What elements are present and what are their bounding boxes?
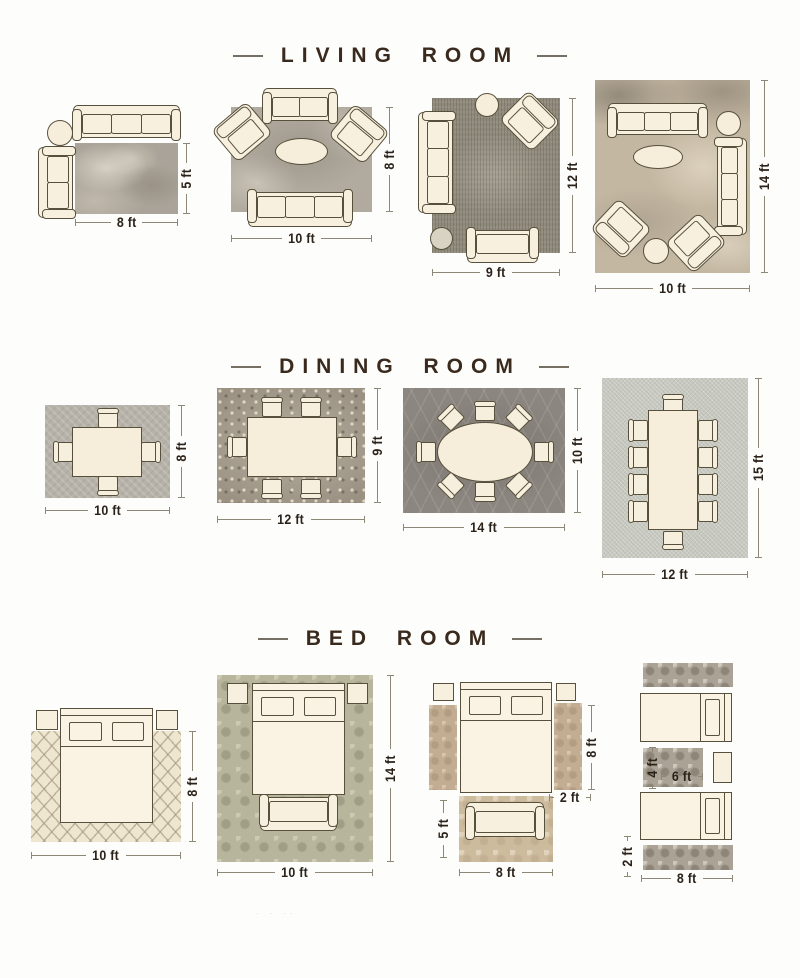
- dimension-line: [389, 175, 390, 212]
- runner-rug: [429, 705, 457, 790]
- rug-width-dimension: 12 ft: [217, 512, 365, 527]
- dining-chair: [141, 442, 158, 462]
- dining-chair: [56, 442, 73, 462]
- pillow-zone: [700, 694, 724, 741]
- chair-back: [227, 436, 233, 458]
- bedroom-layout-runners: 8 ft 2 ft 5 ft 8 ft: [420, 668, 610, 888]
- dimension-line: [577, 388, 578, 431]
- chair-back: [712, 473, 718, 496]
- dining-table: [247, 417, 337, 477]
- rug-width-dimension: 10 ft: [31, 848, 181, 863]
- cushion: [670, 112, 698, 131]
- cushion: [427, 148, 449, 176]
- sofa-cushions: [721, 147, 738, 226]
- three-seat-sofa: [717, 138, 747, 235]
- dimension-line: [390, 675, 391, 749]
- dimension-label: 10 ft: [93, 848, 120, 863]
- loveseat-sofa: [263, 88, 337, 121]
- dimension-line: [652, 784, 653, 789]
- rug-height-dimension: 10 ft: [570, 388, 585, 513]
- cushion: [427, 121, 449, 149]
- cushion: [82, 114, 112, 134]
- dimension-line: [586, 797, 591, 798]
- sofa-cushions: [427, 121, 449, 204]
- dining-layout-12x9: 9 ft 12 ft: [205, 378, 390, 533]
- sofa-arm: [535, 806, 545, 840]
- dimension-label: 8 ft: [117, 215, 137, 230]
- dining-chair: [301, 479, 321, 496]
- runner-rug: [643, 663, 733, 687]
- headboard: [724, 694, 731, 741]
- dining-chair: [698, 474, 715, 495]
- dimension-line: [549, 797, 554, 798]
- rug-width-dimension: 9 ft: [432, 265, 560, 280]
- dimension-line: [591, 763, 592, 790]
- twin-bed: [640, 693, 732, 742]
- dimension-line: [661, 776, 666, 777]
- chair-back: [155, 441, 161, 463]
- living-layout-8x5: 5 ft 8 ft: [30, 85, 210, 240]
- chair-back: [628, 446, 634, 469]
- chair-back: [712, 446, 718, 469]
- rug-width-dimension: 10 ft: [595, 281, 750, 296]
- dimension-label: 5 ft: [436, 819, 451, 839]
- sofa-cushions: [269, 801, 328, 822]
- sofa-arm: [42, 209, 76, 219]
- chair-back: [712, 419, 718, 442]
- dimension-label: 2 ft: [620, 847, 635, 867]
- bedroom-layout-10x14: 14 ft 10 ft: [210, 665, 405, 885]
- dimension-line: [192, 802, 193, 842]
- chair-back: [97, 490, 119, 496]
- rug-height-dimension: 15 ft: [751, 378, 766, 558]
- pillow: [705, 699, 720, 736]
- three-seat-sofa: [418, 112, 453, 213]
- nightstand: [347, 683, 368, 704]
- dimension-label: 12 ft: [662, 567, 689, 582]
- rug-height-dimension: 14 ft: [383, 675, 398, 862]
- dimension-label: 14 ft: [383, 755, 398, 782]
- round-pouf: [430, 227, 453, 250]
- dimension-line: [142, 222, 178, 223]
- dimension-line: [652, 747, 653, 752]
- pillow-row: [461, 690, 551, 721]
- sofa-arm: [714, 137, 743, 147]
- dimension-label: 4 ft: [645, 758, 660, 778]
- header-dash-left: [231, 366, 261, 368]
- dimension-label: 12 ft: [278, 512, 305, 527]
- living-layout-10x14: 14 ft 10 ft: [590, 70, 785, 305]
- dining-chair: [475, 482, 495, 499]
- rug-height-dimension: 8 ft: [185, 731, 200, 842]
- dimension-label: 8 ft: [584, 738, 599, 758]
- dimension-line: [311, 519, 365, 520]
- chair-back: [474, 496, 496, 502]
- dimension-label: 9 ft: [370, 436, 385, 456]
- dimension-label: 10 ft: [282, 865, 309, 880]
- cushion: [314, 196, 343, 218]
- rug-height-dimension: 8 ft: [382, 107, 397, 212]
- rug-width-dimension: 10 ft: [217, 865, 373, 880]
- sofa-arm: [328, 92, 338, 124]
- chair-back: [351, 436, 357, 458]
- sofa-cushions: [257, 196, 343, 218]
- oval-dining-table: [437, 422, 533, 482]
- rug-height-dimension: 14 ft: [757, 80, 772, 273]
- dimension-line: [192, 731, 193, 771]
- cushion: [721, 199, 738, 226]
- dimension-label: 5 ft: [179, 169, 194, 189]
- sofa-arm: [466, 227, 476, 259]
- dimension-line: [186, 143, 187, 163]
- dimension-line: [45, 510, 88, 511]
- dimension-line: [572, 195, 573, 253]
- dimension-label: 9 ft: [486, 265, 506, 280]
- dimension-line: [403, 527, 464, 528]
- dimension-label: 10 ft: [94, 503, 121, 518]
- section-header-living-room: LIVING ROOM: [0, 44, 800, 68]
- dining-chair: [631, 420, 648, 441]
- pillow: [511, 696, 543, 715]
- dimension-line: [758, 488, 759, 558]
- dimension-line: [641, 878, 671, 879]
- nightstand: [156, 710, 178, 730]
- area-rug: [75, 143, 178, 214]
- chair-back: [628, 419, 634, 442]
- sofa-arm: [171, 109, 181, 141]
- cushion: [427, 176, 449, 204]
- dimension-label: 10 ft: [659, 281, 686, 296]
- dimension-line: [75, 222, 111, 223]
- rug-height-dimension: 8 ft: [174, 405, 189, 498]
- dimension-line: [443, 800, 444, 813]
- dimension-line: [692, 288, 750, 289]
- cushion: [269, 801, 328, 822]
- dimension-label: 8 ft: [382, 150, 397, 170]
- pillow: [112, 722, 145, 741]
- round-side-table: [716, 111, 741, 136]
- cushion: [272, 97, 301, 117]
- rug-height-dimension: 5 ft: [179, 143, 194, 214]
- dining-chair: [698, 501, 715, 522]
- living-layout-9x12: 12 ft 9 ft: [415, 85, 595, 285]
- sofa-arm: [698, 107, 708, 138]
- dimension-line: [522, 872, 553, 873]
- cushion: [721, 173, 738, 200]
- section-header-bed-room: BED ROOM: [0, 627, 800, 651]
- mattress: [641, 793, 700, 839]
- chair-back: [628, 473, 634, 496]
- accent-rug-height-dimension: 5 ft: [436, 800, 451, 858]
- dining-chair: [663, 531, 683, 547]
- dimension-label: 8 ft: [496, 865, 516, 880]
- dimension-label: 8 ft: [174, 442, 189, 462]
- rug-height-dimension: 9 ft: [370, 388, 385, 503]
- sofa-cushions: [82, 114, 171, 134]
- bed: [60, 708, 153, 823]
- dining-chair: [230, 437, 247, 457]
- dimension-line: [591, 705, 592, 732]
- nightstand: [227, 683, 248, 704]
- headboard: [61, 709, 152, 716]
- cushion: [257, 196, 286, 218]
- dimension-line: [432, 272, 480, 273]
- dining-chair: [631, 474, 648, 495]
- dimension-line: [764, 196, 765, 273]
- pillow: [69, 722, 102, 741]
- dining-chair: [98, 476, 118, 493]
- nightstand: [713, 752, 732, 783]
- dining-chair: [631, 501, 648, 522]
- three-seat-sofa: [248, 192, 352, 227]
- dimension-line: [389, 107, 390, 144]
- dining-chair: [631, 447, 648, 468]
- dimension-line: [512, 272, 560, 273]
- sofa-arm: [262, 92, 272, 124]
- dimension-label: 6 ft: [672, 769, 692, 784]
- dimension-line: [627, 836, 628, 841]
- dimension-line: [703, 878, 733, 879]
- headboard: [461, 683, 551, 690]
- dimension-line: [390, 788, 391, 862]
- pillow: [261, 697, 294, 716]
- cushion: [47, 156, 69, 183]
- sofa-arm: [42, 146, 76, 156]
- dining-table: [72, 427, 142, 477]
- sofa-cushions: [476, 234, 529, 254]
- living-layout-10x8: 8 ft 10 ft: [218, 80, 408, 255]
- sofa-arm: [247, 189, 257, 223]
- pillow-row: [61, 716, 152, 747]
- dimension-line: [627, 872, 628, 877]
- bedroom-layout-twin-beds: 4 ft 6 ft 2 ft 8 ft: [612, 655, 787, 895]
- rug-width-dimension: 14 ft: [403, 520, 565, 535]
- dining-layout-10x8: 8 ft 10 ft: [35, 395, 200, 540]
- chair-back: [261, 493, 283, 499]
- watermark-dots: · · ··: [256, 908, 297, 918]
- dimension-line: [217, 872, 275, 873]
- dimension-label: 12 ft: [565, 162, 580, 189]
- sofa-cushions: [475, 811, 535, 833]
- dining-chair: [698, 447, 715, 468]
- chair-back: [662, 544, 684, 550]
- dimension-label: 10 ft: [288, 231, 315, 246]
- dining-chair: [698, 420, 715, 441]
- dimension-line: [181, 467, 182, 498]
- sofa-arm: [529, 227, 539, 259]
- dimension-label: 8 ft: [185, 777, 200, 797]
- dimension-line: [321, 238, 372, 239]
- runner-height-dimension: 8 ft: [584, 705, 599, 790]
- rug-width-dimension: 10 ft: [231, 231, 372, 246]
- oval-coffee-table: [633, 145, 683, 169]
- dining-chair: [475, 404, 495, 421]
- chair-back: [261, 397, 283, 403]
- rug-width-dimension: 12 ft: [602, 567, 748, 582]
- chair-back: [474, 401, 496, 407]
- mattress: [61, 747, 152, 822]
- section-title-living-room: LIVING ROOM: [281, 44, 519, 68]
- mattress: [461, 721, 551, 792]
- sofa-arm: [607, 107, 617, 138]
- rug-size-guide-infographic: LIVING ROOM 5 ft 8 ft: [0, 0, 800, 978]
- dining-chair: [301, 400, 321, 417]
- dimension-line: [377, 461, 378, 503]
- sofa-arm: [72, 109, 82, 141]
- dimension-line: [758, 378, 759, 448]
- dimension-line: [231, 238, 282, 239]
- dimension-label: 8 ft: [677, 871, 697, 886]
- dimension-line: [695, 574, 748, 575]
- dimension-line: [443, 845, 444, 858]
- runner-height-dimension: 2 ft: [620, 842, 635, 871]
- cushion: [476, 234, 529, 254]
- chair-back: [300, 397, 322, 403]
- dimension-line: [31, 855, 86, 856]
- headboard: [724, 793, 731, 839]
- runner-width-dimension: 8 ft: [641, 871, 733, 886]
- header-dash-left: [258, 638, 288, 640]
- cushion: [111, 114, 141, 134]
- dimension-line: [126, 855, 181, 856]
- bed: [252, 683, 345, 795]
- cushion: [617, 112, 645, 131]
- pillow: [304, 697, 337, 716]
- dimension-label: 15 ft: [751, 455, 766, 482]
- pillow-row: [253, 691, 344, 722]
- sofa-arm: [422, 111, 456, 121]
- headboard: [253, 684, 344, 691]
- chair-back: [662, 394, 684, 400]
- pillow-zone: [700, 793, 724, 839]
- rug-width-dimension: 8 ft: [75, 215, 178, 230]
- dimension-label: 14 ft: [471, 520, 498, 535]
- dining-layout-14x10: 10 ft 14 ft: [395, 378, 590, 538]
- section-title-dining-room: DINING ROOM: [279, 355, 521, 379]
- header-dash-right: [539, 366, 569, 368]
- header-dash-right: [537, 55, 567, 57]
- accent-rug-width-dimension: 8 ft: [459, 865, 553, 880]
- dimension-line: [186, 194, 187, 214]
- chair-back: [548, 441, 554, 463]
- header-dash-right: [512, 638, 542, 640]
- dining-chair: [262, 400, 282, 417]
- sofa-cushions: [47, 156, 69, 209]
- dining-chair: [419, 442, 436, 462]
- bedroom-bench: [260, 797, 337, 831]
- round-side-table: [475, 93, 499, 117]
- between-rug-height-dimension: 4 ft: [645, 750, 660, 786]
- runner-rug: [643, 845, 733, 870]
- sofa-cushions: [272, 97, 328, 117]
- cushion: [475, 811, 535, 833]
- twin-bed: [640, 792, 732, 840]
- bedroom-layout-10x8: 8 ft 10 ft: [22, 695, 212, 870]
- round-side-table: [47, 120, 73, 146]
- chair-back: [97, 408, 119, 414]
- nightstand: [556, 683, 576, 701]
- dining-chair: [337, 437, 354, 457]
- sofa-arm: [259, 794, 269, 827]
- mattress: [253, 722, 344, 794]
- dining-layout-12x15: 15 ft 12 ft: [592, 368, 782, 593]
- dining-chair: [98, 411, 118, 428]
- header-dash-left: [233, 55, 263, 57]
- bedroom-bench: [466, 802, 544, 837]
- three-seat-sofa: [608, 103, 707, 135]
- sofa-arm: [343, 189, 353, 223]
- dining-chair: [262, 479, 282, 496]
- cushion: [644, 112, 672, 131]
- dimension-line: [595, 288, 653, 289]
- dimension-line: [127, 510, 170, 511]
- dimension-line: [377, 388, 378, 430]
- sofa-arm: [422, 204, 456, 214]
- nightstand: [433, 683, 454, 701]
- dimension-line: [577, 470, 578, 513]
- cushion: [47, 182, 69, 209]
- round-pouf: [643, 238, 669, 264]
- chair-back: [712, 500, 718, 523]
- dining-table: [648, 410, 698, 530]
- dimension-line: [504, 527, 565, 528]
- chair-back: [53, 441, 59, 463]
- dimension-label: 2 ft: [560, 790, 580, 805]
- rug-height-dimension: 12 ft: [565, 98, 580, 253]
- runner-rug: [554, 703, 582, 790]
- sofa-cushions: [617, 112, 698, 131]
- dimension-label: 14 ft: [757, 163, 772, 190]
- dining-chair: [534, 442, 551, 462]
- dimension-line: [181, 405, 182, 436]
- dimension-line: [217, 519, 271, 520]
- pillow: [705, 798, 720, 834]
- sofa-arm: [328, 794, 338, 827]
- sofa-arm: [465, 806, 475, 840]
- dimension-line: [572, 98, 573, 156]
- chair-back: [628, 500, 634, 523]
- dimension-line: [602, 574, 655, 575]
- dimension-line: [459, 872, 490, 873]
- cushion: [299, 97, 328, 117]
- section-title-bed-room: BED ROOM: [306, 627, 495, 651]
- oval-coffee-table: [275, 138, 328, 165]
- chair-back: [300, 493, 322, 499]
- rug-width-dimension: 10 ft: [45, 503, 170, 518]
- three-seat-sofa: [73, 105, 180, 138]
- mattress: [641, 694, 700, 741]
- cushion: [285, 196, 314, 218]
- cushion: [721, 147, 738, 174]
- cushion: [141, 114, 171, 134]
- dimension-label: 10 ft: [570, 437, 585, 464]
- dimension-line: [764, 80, 765, 157]
- pillow: [469, 696, 501, 715]
- chair-back: [416, 441, 422, 463]
- bed: [460, 682, 552, 793]
- chaise-sofa: [38, 147, 73, 218]
- dimension-line: [698, 776, 703, 777]
- loveseat-sofa: [467, 230, 538, 263]
- runner-width-dimension: 2 ft: [550, 790, 590, 805]
- nightstand: [36, 710, 58, 730]
- dimension-line: [315, 872, 373, 873]
- between-rug-width-dimension: 6 ft: [663, 769, 701, 784]
